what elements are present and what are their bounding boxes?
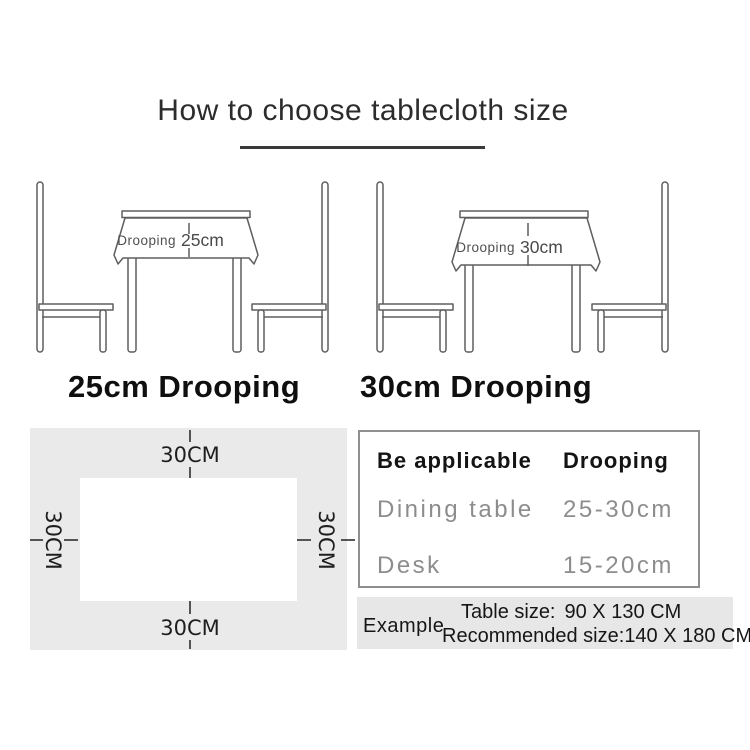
tabletop (460, 211, 588, 218)
table-legs (128, 248, 241, 352)
table-size-value: 90 X 130 CM (565, 601, 682, 623)
recommended-size-label: Recommended size: (442, 625, 624, 647)
spec-row-desk-label: Desk (377, 552, 442, 580)
caption-25cm-drooping: 25cm Drooping (68, 369, 300, 405)
table-legs (465, 256, 580, 352)
drooping-spec-table: Be applicable Drooping Dining table 25-3… (358, 430, 700, 588)
tablecloth-size-infographic: How to choose tablecloth size (0, 0, 750, 750)
spec-row-dining-value: 25-30cm (563, 496, 674, 524)
chair-right (252, 182, 328, 352)
spec-row-desk-value: 15-20cm (563, 552, 674, 580)
spec-header-applicable: Be applicable (377, 448, 532, 474)
dimension-label-left: 30CM (41, 510, 65, 570)
dimension-label-right: 30CM (314, 510, 338, 570)
dimension-label-bottom: 30CM (160, 616, 220, 640)
chair-left (37, 182, 113, 352)
drooping-word-label: Drooping (117, 233, 176, 248)
tablecloth-30cm-illustration: Drooping 30cm (365, 178, 695, 363)
example-table-size-line: Table size:90 X 130 CM (461, 601, 681, 624)
table-top-rect (80, 478, 297, 601)
drooping-word-label: Drooping (456, 240, 515, 255)
recommended-size-value: 140 X 180 CM (624, 625, 750, 647)
chair-left (377, 182, 453, 352)
example-recommended-line: Recommended size:140 X 180 CM (442, 625, 750, 648)
chair-right (592, 182, 668, 352)
dimension-label-top: 30CM (160, 443, 220, 467)
table-size-label: Table size: (461, 601, 556, 623)
spec-header-drooping: Drooping (563, 448, 669, 474)
caption-30cm-drooping: 30cm Drooping (360, 369, 592, 405)
drooping-value-label: 30cm (520, 237, 563, 257)
page-title: How to choose tablecloth size (0, 94, 726, 128)
drooping-size-diagram: 30CM 30CM 30CM 30CM (30, 428, 360, 650)
spec-row-dining-label: Dining table (377, 496, 534, 524)
drooping-value-label: 25cm (181, 230, 224, 250)
example-label: Example (363, 615, 444, 638)
example-strip: Example Table size:90 X 130 CM Recommend… (357, 597, 733, 649)
tabletop (122, 211, 250, 218)
title-underline (240, 146, 485, 149)
tablecloth-25cm-illustration: Drooping 25cm (25, 178, 355, 363)
